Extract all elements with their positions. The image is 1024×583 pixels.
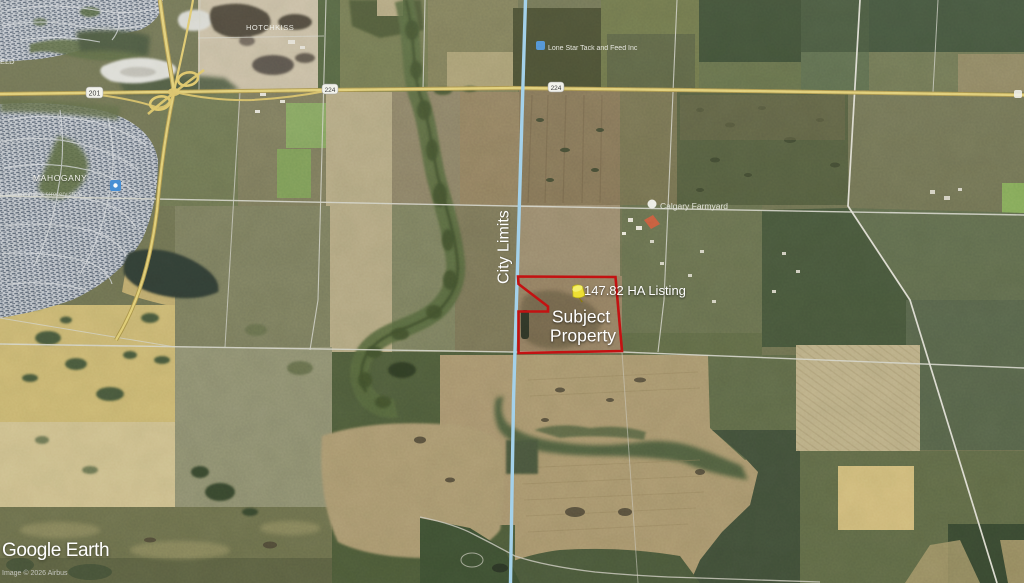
svg-text:p convenience & Grocery store: p convenience & Grocery store xyxy=(0,192,83,198)
svg-text:Google Earth: Google Earth xyxy=(2,540,109,561)
svg-text:HOTCHKISS: HOTCHKISS xyxy=(246,23,294,32)
svg-text:MAHOGANY: MAHOGANY xyxy=(33,173,87,183)
svg-text:Calgary Farmyard: Calgary Farmyard xyxy=(660,201,728,211)
svg-text:Lone Star Tack and Feed Inc: Lone Star Tack and Feed Inc xyxy=(548,45,638,52)
svg-text:ELD: ELD xyxy=(0,57,15,66)
svg-text:147.82 HA Listing: 147.82 HA Listing xyxy=(584,283,686,298)
svg-text:Image © 2026 Airbus: Image © 2026 Airbus xyxy=(2,569,68,577)
svg-text:Property: Property xyxy=(550,326,616,346)
svg-text:City Limits: City Limits xyxy=(496,210,513,284)
svg-text:Subject: Subject xyxy=(552,307,611,327)
